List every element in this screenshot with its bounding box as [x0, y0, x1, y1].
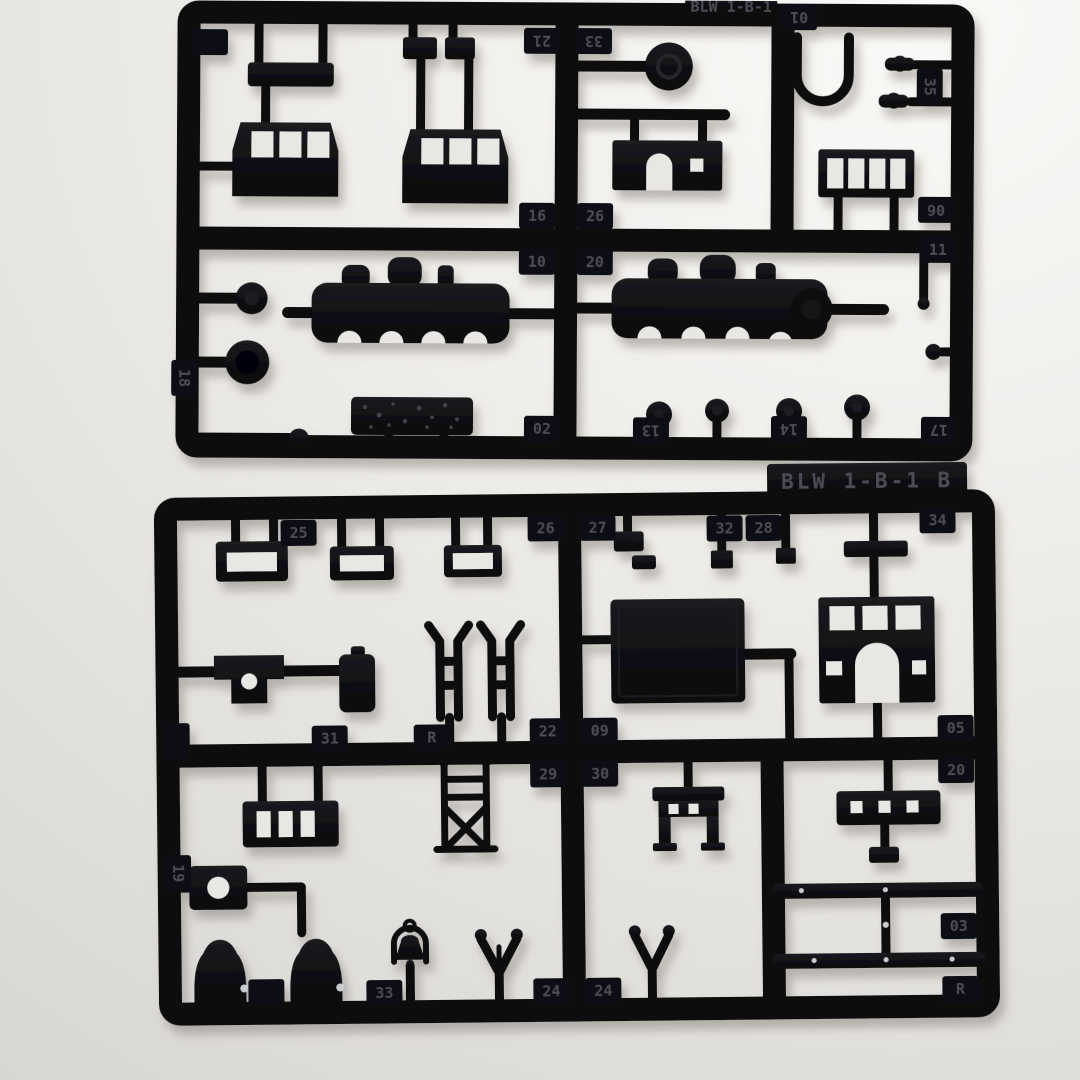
svg-text:22: 22: [539, 722, 557, 740]
svg-text:01: 01: [790, 8, 808, 26]
dome-cap-part: [645, 42, 693, 90]
part-number-tab: 31: [312, 725, 348, 751]
coal-load-block-part: [351, 397, 473, 436]
part-number-tab: 20: [938, 757, 974, 783]
part-number-tab: 02: [524, 416, 560, 442]
wing-nut-part-2: [879, 93, 909, 109]
part-number-tab: 11: [920, 237, 956, 263]
svg-text:29: 29: [539, 765, 557, 783]
part-number-tab: 18: [171, 360, 197, 396]
svg-text:34: 34: [928, 511, 946, 529]
svg-text:25: 25: [289, 524, 307, 542]
window-frame-part-1: [216, 541, 288, 582]
roof-panel-part: [610, 598, 745, 703]
part-number-tab: 03: [941, 913, 977, 939]
square-block-part-1: [711, 550, 733, 568]
top-sprue-label-text: BLW 1-B-1: [690, 0, 771, 16]
part-number-tab: [164, 723, 190, 759]
part-number-tab: 22: [530, 718, 566, 744]
svg-text:28: 28: [754, 519, 772, 537]
part-number-tab: 27: [579, 515, 615, 541]
truss-frame-part: [436, 761, 495, 850]
svg-text:09: 09: [591, 722, 609, 740]
svg-text:11: 11: [929, 241, 947, 259]
svg-text:33: 33: [585, 32, 603, 50]
bottom-sprue: BLW 1-B-1 B: [161, 462, 989, 1015]
cab-front-panel: [612, 140, 722, 191]
svg-text:31: 31: [321, 729, 339, 747]
part-number-tab: 21: [524, 28, 560, 54]
part-number-tab: 28: [745, 515, 781, 541]
svg-text:26: 26: [536, 519, 554, 537]
svg-text:13: 13: [642, 421, 660, 439]
pilot-fork-part-2: [629, 925, 676, 1003]
part-number-tab: 14: [771, 416, 807, 442]
part-number-tab: 34: [919, 507, 955, 533]
pin-part: [918, 298, 930, 310]
step-ladder-part: [242, 801, 338, 848]
tank-canister-part: [339, 646, 376, 712]
part-number-tab: 09: [582, 718, 618, 744]
ladder-stile-part-2: [481, 625, 522, 717]
svg-text:21: 21: [533, 32, 551, 50]
part-number-tab: 19: [165, 855, 191, 891]
handrail-loop-part: [797, 37, 849, 101]
part-number-tab: 32: [706, 515, 742, 541]
part-number-tab: R: [942, 976, 978, 1002]
square-block-part-2: [776, 548, 796, 564]
clip-part-3: [614, 531, 644, 551]
clip-part-2: [445, 37, 475, 59]
part-number-tab: R: [414, 724, 450, 750]
dome-top-part: [236, 282, 268, 314]
svg-text:R: R: [956, 980, 966, 998]
part-number-tab: 24: [533, 978, 569, 1004]
svg-text:19: 19: [169, 864, 187, 882]
grab-iron-bar-part: [836, 790, 940, 825]
part-number-tab: [248, 979, 284, 1005]
svg-text:24: 24: [542, 982, 560, 1000]
part-number-tab: 25: [280, 520, 316, 546]
svg-text:05: 05: [947, 719, 965, 737]
part-number-tab: 20: [577, 249, 613, 275]
part-number-tab: 30: [582, 761, 618, 787]
part-number-tab: 26: [527, 515, 563, 541]
part-number-tab: 13: [633, 417, 669, 443]
bracket-with-hole-part: [214, 655, 284, 704]
window-frame-part-2: [330, 546, 394, 581]
part-number-tab: 26: [577, 203, 613, 229]
part-number-tab: 35: [917, 69, 943, 105]
wing-nut-part-1: [885, 56, 915, 72]
svg-text:20: 20: [947, 761, 965, 779]
svg-text:26: 26: [586, 207, 604, 225]
part-number-tab: [192, 29, 228, 55]
part-number-tab: 16: [519, 203, 555, 229]
clip-part-1: [403, 37, 437, 59]
cab-front-arch-panel-part: [818, 596, 935, 703]
svg-text:18: 18: [175, 369, 193, 387]
steam-dome-part-1: [194, 939, 249, 1006]
svg-text:02: 02: [533, 420, 551, 438]
part-number-tab: 24: [585, 978, 621, 1004]
cab-side-panel-1: [232, 122, 338, 197]
svg-text:16: 16: [528, 207, 546, 225]
equipment-bar-part: [248, 62, 334, 86]
ball-detail-part-left: [289, 429, 309, 449]
part-number-tab: 05: [938, 715, 974, 741]
top-sprue-label-fragment: BLW 1-B-1: [685, 0, 777, 16]
boiler-shell-half-right: [611, 254, 832, 339]
bench-step-part: [652, 786, 725, 851]
low-bar-part: [844, 541, 908, 558]
svg-text:32: 32: [715, 519, 733, 537]
top-sprue: BLW 1-B-1: [171, 0, 963, 452]
cylinder-cap-part: [225, 340, 269, 384]
elbow-bracket-part: [869, 847, 899, 863]
svg-text:17: 17: [930, 421, 948, 439]
ladder-stile-part-1: [429, 625, 470, 717]
svg-text:R: R: [427, 728, 437, 746]
part-number-tab: 33: [366, 980, 402, 1006]
number-plate-with-hole-part: [189, 865, 247, 910]
part-number-tab: 29: [530, 761, 566, 787]
bottom-sprue-label-plate: BLW 1-B-1 B: [767, 462, 967, 498]
clip-part-4: [632, 555, 656, 569]
bell-with-yoke-part: [394, 921, 426, 968]
cab-side-panel-2: [402, 129, 508, 204]
sprue-photo-svg: BLW 1-B-1: [0, 0, 1080, 1080]
svg-text:10: 10: [528, 253, 546, 271]
svg-text:03: 03: [950, 917, 968, 935]
part-number-tab: 17: [921, 417, 957, 443]
ball-detail-part-right: [925, 344, 941, 360]
part-number-tab: 33: [576, 28, 612, 54]
svg-text:27: 27: [588, 519, 606, 537]
round-knob-parts: [646, 393, 870, 428]
part-number-tab: 06: [918, 197, 954, 223]
svg-text:24: 24: [594, 982, 612, 1000]
boiler-shell-half-left: [311, 257, 509, 344]
svg-text:30: 30: [591, 765, 609, 783]
four-pane-window-frame-part: [818, 149, 914, 198]
svg-text:06: 06: [927, 201, 945, 219]
svg-text:20: 20: [586, 253, 604, 271]
running-board-bar-part-2: [772, 952, 986, 969]
pilot-fork-part-1: [475, 929, 524, 1005]
steam-dome-part-2: [290, 938, 345, 1005]
bottom-sprue-label-text: BLW 1-B-1 B: [781, 468, 953, 494]
running-board-bar-part-1: [771, 882, 983, 899]
window-frame-part-3: [444, 545, 502, 578]
part-number-tab: 01: [781, 4, 817, 30]
svg-text:14: 14: [780, 420, 798, 438]
bottom-sprue-inner-rails: [167, 502, 986, 1014]
svg-text:33: 33: [375, 984, 393, 1002]
part-number-tab: 10: [519, 249, 555, 275]
photo-background: BLW 1-B-1: [0, 0, 1080, 1080]
svg-text:35: 35: [921, 78, 939, 96]
